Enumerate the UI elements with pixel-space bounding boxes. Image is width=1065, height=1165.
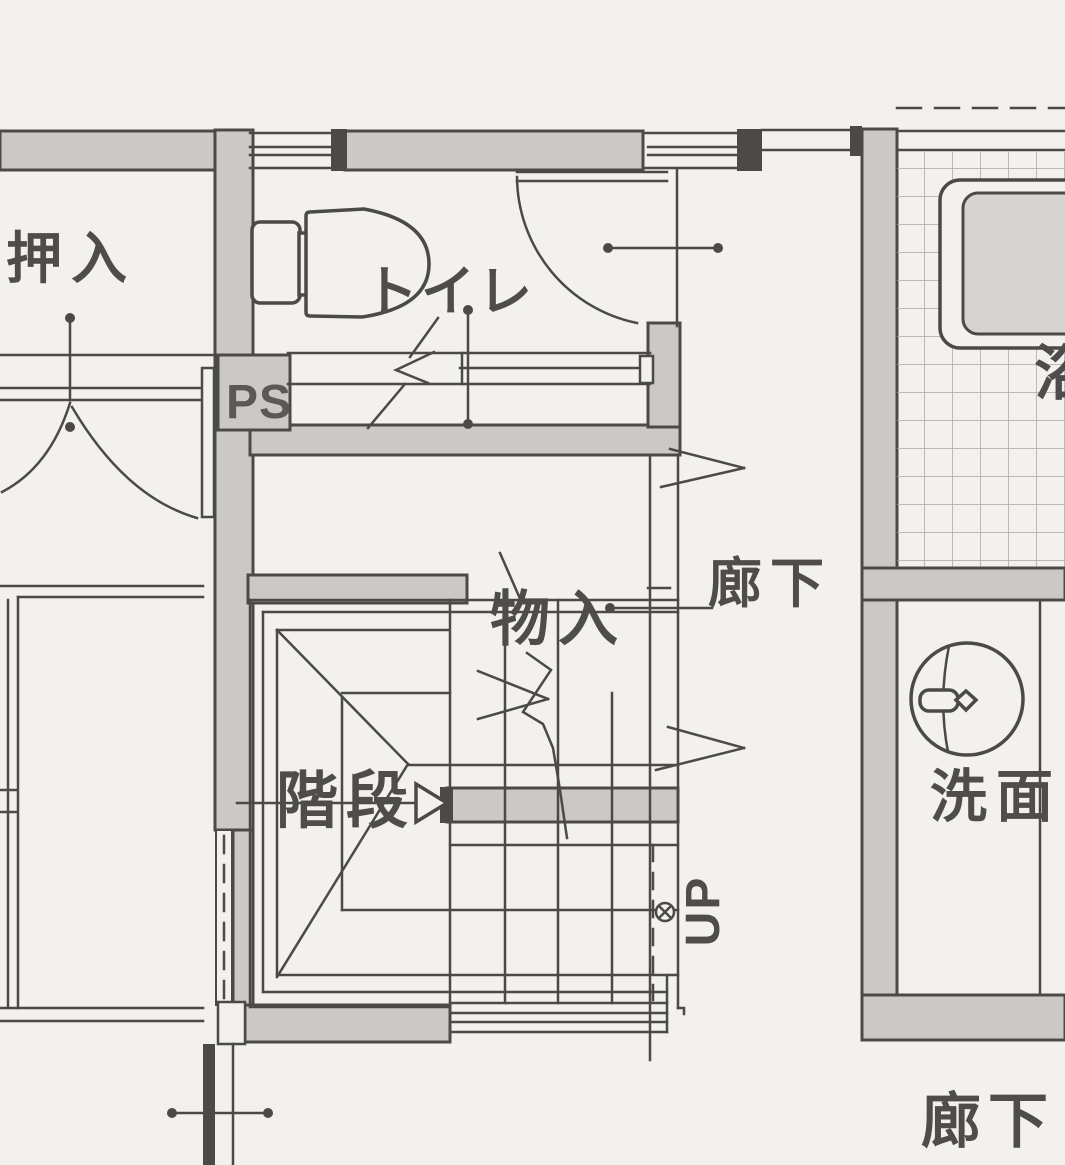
toilet-leader-arrow [368, 318, 438, 428]
room-label-storage: 物入 [490, 588, 626, 651]
up-route [653, 845, 674, 1000]
room-label-bath: 浴 [1034, 342, 1065, 405]
toilet-tank [252, 222, 300, 303]
lower-left-room [0, 586, 203, 1021]
hall-door [517, 170, 723, 326]
room-label-pipe-space: PS [226, 378, 292, 428]
dimension-line-bottom [167, 1108, 273, 1118]
room-label-hallway-middle: 廊下 [708, 556, 832, 613]
wall-top-left [0, 131, 218, 170]
wall-post [331, 129, 347, 171]
floor-plan: 押入 トイレ PS 物入 廊下 階段 UP 洗面 浴 廊下 [0, 0, 1065, 1165]
bathroom [862, 108, 1065, 1035]
wall-washroom-bottom [862, 995, 1065, 1040]
door-swing-arc [2, 403, 70, 492]
stairs-up-label: UP [677, 865, 731, 957]
bathtub-inner [963, 193, 1065, 334]
wall-pocket-opening [216, 830, 232, 1005]
room-label-stairs: 階段 [276, 769, 416, 834]
wall-bath-washroom [862, 568, 1065, 600]
room-label-closet: 押入 [6, 230, 136, 289]
wall-lower-left [203, 1044, 215, 1165]
wall-post [737, 129, 762, 171]
wall-vertical-main [215, 130, 253, 830]
opening-arrow-bottom [656, 727, 744, 770]
opening-top-right [762, 130, 862, 150]
wall-corner-post [218, 1002, 245, 1044]
room-label-toilet: トイレ [364, 264, 535, 321]
wall-below-toilet [250, 425, 680, 455]
closet-doors [0, 313, 215, 518]
door-jamb [202, 368, 214, 517]
dimension-line-door [603, 243, 723, 253]
toilet-sliding-door [288, 353, 653, 384]
room-label-washroom: 洗面 [930, 768, 1062, 828]
hallway-wall [648, 449, 744, 1060]
room-label-hallway-bottom: 廊下 [921, 1090, 1055, 1153]
floor-plan-drawing [0, 0, 1065, 1165]
door-jamb [640, 356, 653, 383]
wall-stair-bottom [245, 1005, 450, 1042]
window-hall-top [643, 133, 737, 168]
window-toilet-top [250, 133, 331, 168]
door-swing-arc [72, 407, 197, 518]
faucet [920, 690, 958, 711]
wall-top-toilet [345, 131, 643, 170]
door-swing-arc [517, 177, 637, 323]
